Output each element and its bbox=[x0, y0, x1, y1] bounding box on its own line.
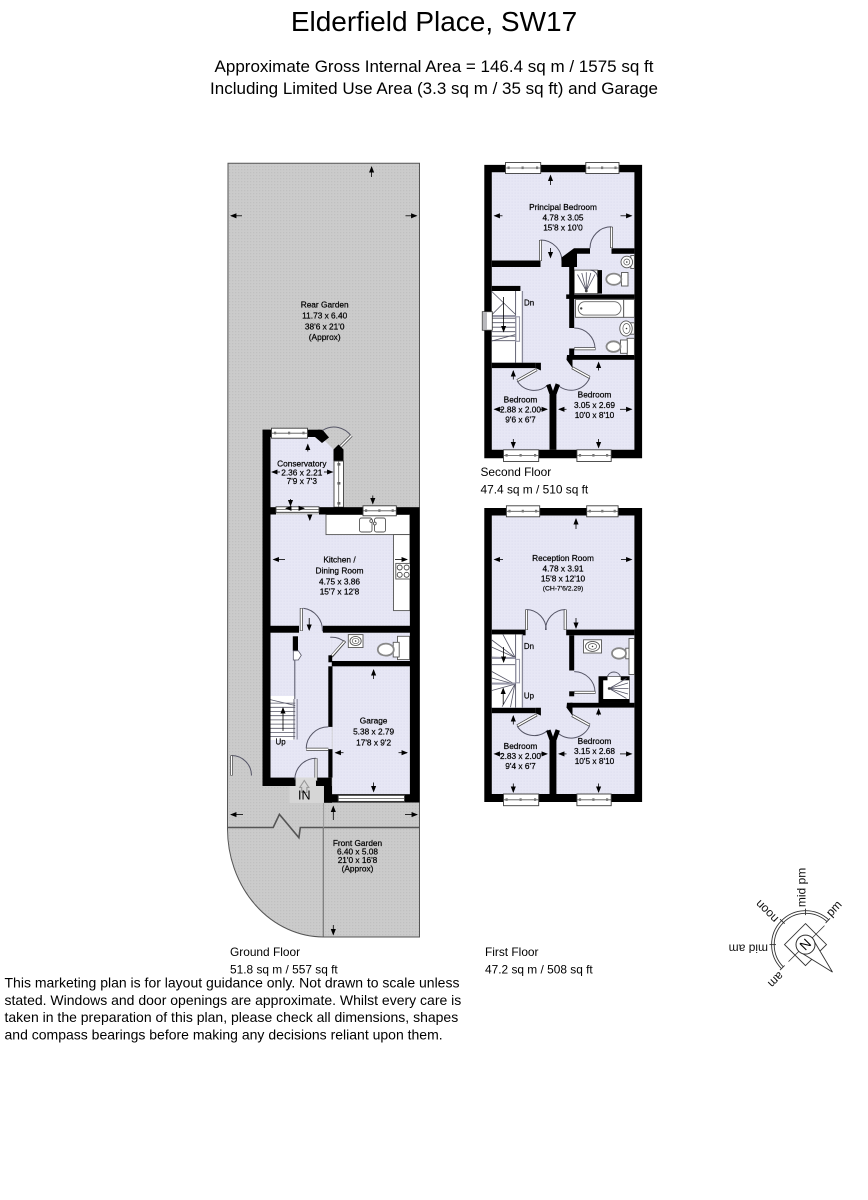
svg-text:Second Floor: Second Floor bbox=[481, 465, 552, 479]
svg-text:mid pm: mid pm bbox=[795, 868, 809, 907]
svg-text:4.75 x 3.86: 4.75 x 3.86 bbox=[319, 576, 360, 586]
svg-text:9'6 x 6'7: 9'6 x 6'7 bbox=[505, 415, 536, 425]
svg-text:Up: Up bbox=[276, 738, 287, 747]
svg-text:4.78 x 3.91: 4.78 x 3.91 bbox=[542, 564, 583, 574]
svg-text:Dn: Dn bbox=[524, 299, 534, 308]
svg-text:15'7 x 12'8: 15'7 x 12'8 bbox=[320, 587, 360, 597]
svg-text:Bedroom: Bedroom bbox=[578, 390, 612, 400]
svg-text:15'8 x 10'0: 15'8 x 10'0 bbox=[543, 223, 583, 233]
svg-text:Principal Bedroom: Principal Bedroom bbox=[529, 202, 597, 212]
svg-text:15'8 x 12'10: 15'8 x 12'10 bbox=[541, 574, 586, 584]
svg-text:7'9 x 7'3: 7'9 x 7'3 bbox=[287, 476, 318, 486]
svg-text:taken in the preparation of th: taken in the preparation of this plan, p… bbox=[5, 1009, 459, 1025]
svg-text:Bedroom: Bedroom bbox=[504, 395, 538, 405]
svg-text:Up: Up bbox=[524, 692, 535, 701]
svg-text:(Approx): (Approx) bbox=[309, 332, 341, 342]
svg-text:3.05 x 2.69: 3.05 x 2.69 bbox=[574, 400, 615, 410]
svg-text:2.88 x 2.00: 2.88 x 2.00 bbox=[500, 405, 541, 415]
svg-text:17'8 x 9'2: 17'8 x 9'2 bbox=[356, 737, 391, 747]
svg-text:IN: IN bbox=[298, 789, 311, 803]
svg-text:47.4 sq m / 510 sq ft: 47.4 sq m / 510 sq ft bbox=[481, 483, 589, 497]
svg-text:First Floor: First Floor bbox=[485, 945, 539, 959]
svg-text:(CH-7'6/2.29): (CH-7'6/2.29) bbox=[543, 586, 584, 593]
svg-text:Reception Room: Reception Room bbox=[532, 553, 594, 563]
svg-text:Rear Garden: Rear Garden bbox=[301, 300, 349, 310]
svg-text:10'5 x 8'10: 10'5 x 8'10 bbox=[575, 756, 615, 766]
svg-text:Ground Floor: Ground Floor bbox=[230, 945, 300, 959]
svg-text:38'6 x 21'0: 38'6 x 21'0 bbox=[305, 321, 345, 331]
svg-text:Including Limited Use Area (3.: Including Limited Use Area (3.3 sq m / 3… bbox=[210, 79, 658, 98]
svg-text:10'0 x 8'10: 10'0 x 8'10 bbox=[575, 410, 615, 420]
svg-text:47.2 sq m / 508 sq ft: 47.2 sq m / 508 sq ft bbox=[485, 963, 593, 977]
svg-text:(Approx): (Approx) bbox=[342, 863, 374, 873]
svg-text:and compass bearings before ma: and compass bearings before making any d… bbox=[5, 1026, 443, 1042]
svg-text:11.73 x 6.40: 11.73 x 6.40 bbox=[302, 311, 347, 321]
svg-text:Dn: Dn bbox=[524, 642, 534, 651]
svg-text:Approximate Gross Internal Are: Approximate Gross Internal Area = 146.4 … bbox=[215, 57, 654, 76]
svg-text:Dining Room: Dining Room bbox=[316, 566, 364, 576]
svg-text:mid am: mid am bbox=[729, 942, 768, 956]
svg-text:3.15 x 2.68: 3.15 x 2.68 bbox=[574, 746, 615, 756]
svg-text:4.78 x 3.05: 4.78 x 3.05 bbox=[542, 213, 583, 223]
svg-text:Garage: Garage bbox=[360, 716, 388, 726]
svg-text:stated. Windows and door openi: stated. Windows and door openings are ap… bbox=[5, 992, 462, 1008]
svg-text:9'4 x 6'7: 9'4 x 6'7 bbox=[505, 761, 536, 771]
svg-text:Bedroom: Bedroom bbox=[504, 741, 538, 751]
svg-text:Bedroom: Bedroom bbox=[578, 736, 612, 746]
svg-text:Elderfield Place, SW17: Elderfield Place, SW17 bbox=[291, 6, 577, 37]
svg-text:Kitchen /: Kitchen / bbox=[323, 555, 356, 565]
svg-text:This marketing plan is for lay: This marketing plan is for layout guidan… bbox=[5, 975, 460, 991]
svg-text:2.83 x 2.00: 2.83 x 2.00 bbox=[500, 751, 541, 761]
svg-text:5.38 x 2.79: 5.38 x 2.79 bbox=[353, 727, 394, 737]
